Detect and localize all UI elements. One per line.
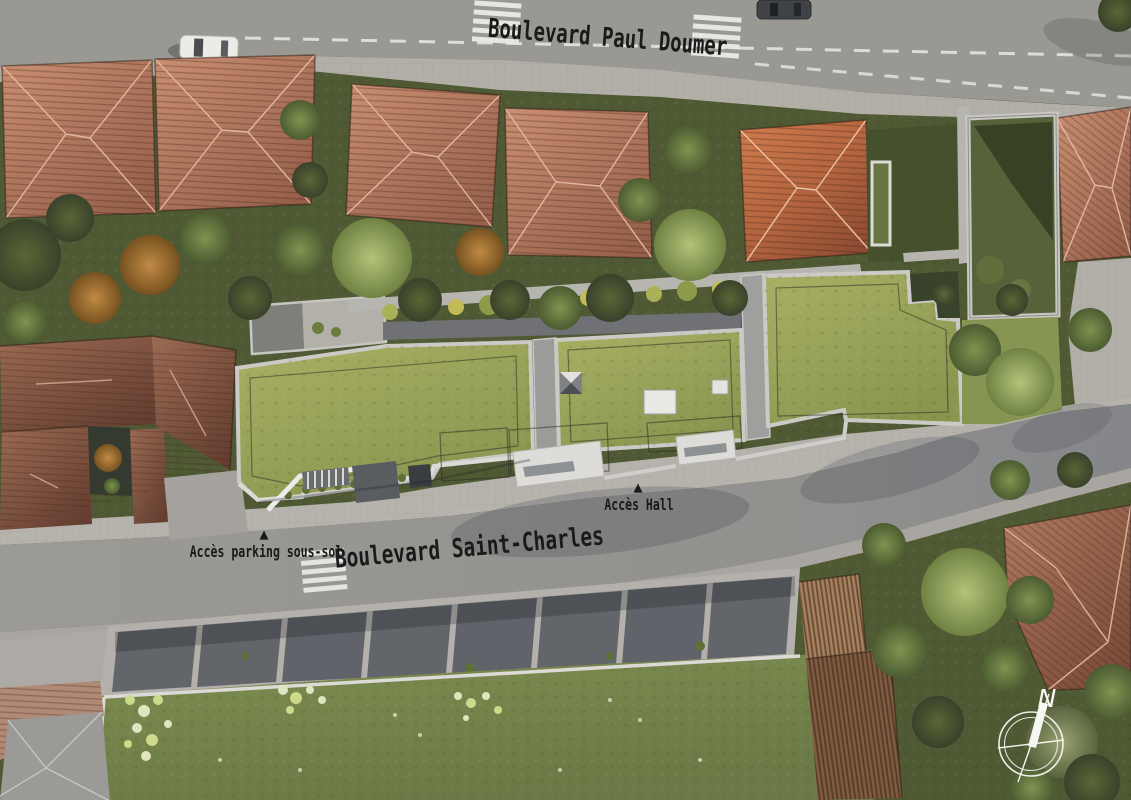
tree	[179, 212, 231, 264]
compass-north-label: N	[1038, 684, 1057, 713]
house-roof	[740, 120, 872, 262]
house-roof	[346, 84, 500, 227]
tree	[332, 218, 412, 298]
tree	[981, 644, 1029, 692]
planter-frame	[872, 162, 890, 245]
tree	[120, 235, 180, 295]
shrub	[331, 327, 341, 337]
shrub	[695, 641, 705, 651]
tree	[228, 276, 272, 320]
tree	[986, 348, 1054, 416]
shrub	[606, 652, 614, 660]
tree	[862, 523, 906, 567]
tree	[1057, 452, 1093, 488]
site-plan-svg: Boulevard Paul Doumer Boulevard Saint-Ch…	[0, 0, 1131, 800]
tree	[654, 209, 726, 281]
driveway	[164, 470, 248, 540]
tree	[69, 272, 121, 324]
tree	[586, 274, 634, 322]
triangle-marker-icon: ▲	[633, 478, 642, 496]
tree	[996, 284, 1028, 316]
tree	[921, 548, 1009, 636]
tree	[398, 278, 442, 322]
tree	[3, 300, 47, 344]
house-roof	[2, 60, 156, 218]
tree	[274, 224, 326, 276]
car	[757, 0, 811, 19]
tree	[664, 126, 712, 174]
triangle-marker-icon: ▲	[259, 525, 268, 543]
access-hall-label: Accès Hall	[604, 496, 673, 514]
roof-box	[644, 390, 676, 414]
tree	[912, 696, 964, 748]
shrub	[241, 652, 249, 660]
tree	[280, 100, 320, 140]
roof-box	[712, 380, 728, 394]
access-parking-label: Accès parking sous-sol	[190, 543, 343, 561]
tree	[1068, 308, 1112, 352]
tree	[46, 194, 94, 242]
tree	[104, 478, 120, 494]
tree	[618, 178, 662, 222]
neighbor-gray-roof	[0, 712, 110, 800]
tree	[932, 282, 956, 306]
shrub	[312, 322, 324, 334]
tree	[292, 162, 328, 198]
house-roof	[1057, 107, 1131, 262]
tree	[456, 228, 504, 276]
site-plan-image: Boulevard Paul Doumer Boulevard Saint-Ch…	[0, 0, 1131, 800]
tree	[1006, 576, 1054, 624]
tree	[990, 460, 1030, 500]
tree	[94, 444, 122, 472]
tree	[490, 280, 530, 320]
skylight	[560, 372, 582, 394]
tree	[538, 286, 582, 330]
tree	[872, 622, 928, 678]
tree	[712, 280, 748, 316]
